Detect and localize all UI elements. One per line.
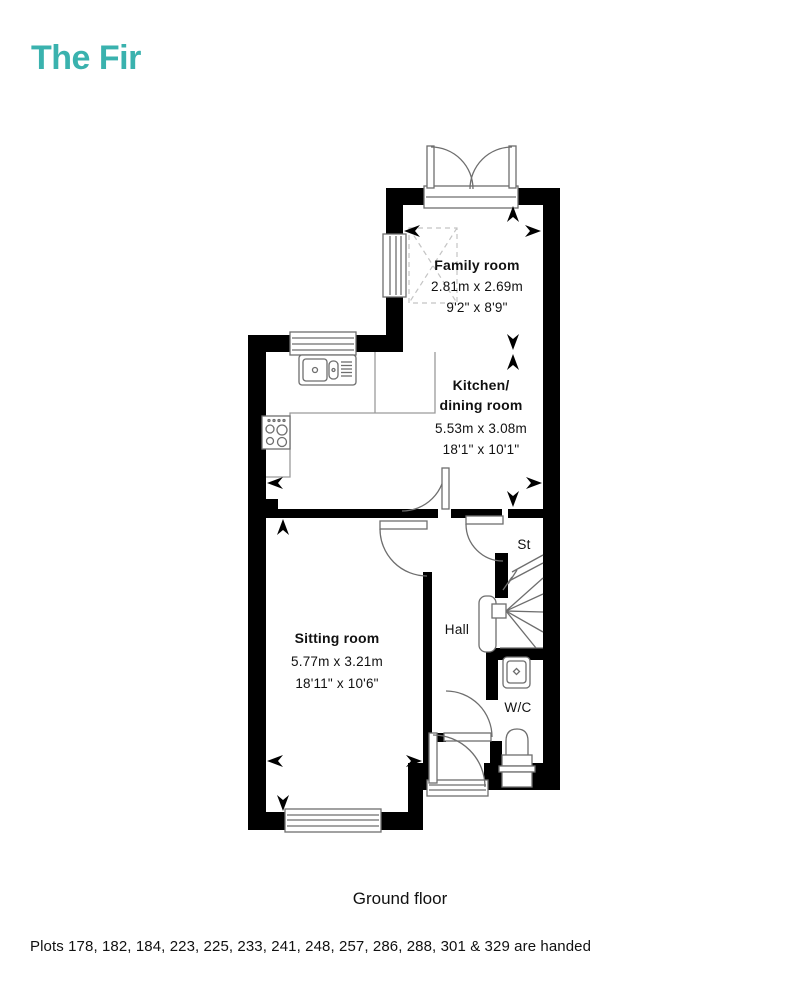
kitchen-label-line1: Kitchen/ — [453, 377, 510, 393]
basin-icon — [503, 657, 530, 688]
brochure-page: The Fir — [0, 0, 800, 983]
stairs-icon — [479, 555, 543, 652]
floor-caption: Ground floor — [0, 889, 800, 909]
toilet-icon — [499, 729, 535, 787]
sitting-room-label: Sitting room — [295, 630, 380, 646]
kitchen-metric: 5.53m x 3.08m — [435, 421, 527, 436]
sitting-room-window-icon — [285, 809, 381, 832]
family-room-metric: 2.81m x 2.69m — [431, 279, 523, 294]
sitting-room-metric: 5.77m x 3.21m — [291, 654, 383, 669]
kitchen-imperial: 18'1" x 10'1" — [443, 442, 520, 457]
plots-footnote: Plots 178, 182, 184, 223, 225, 233, 241,… — [30, 938, 770, 955]
sitting-room-door-icon — [380, 521, 427, 576]
french-doors-icon — [424, 146, 518, 208]
kitchen-door-icon — [402, 468, 449, 511]
sink-icon — [299, 355, 356, 385]
hob-icon — [262, 416, 290, 449]
floor-plan: Family room 2.81m x 2.69m 9'2" x 8'9" Ki… — [0, 0, 800, 983]
family-room-label: Family room — [434, 257, 519, 273]
kitchen-label-line2: dining room — [439, 397, 522, 413]
wc-door-icon — [444, 691, 492, 741]
storage-label: St — [517, 537, 530, 552]
hall-label: Hall — [445, 622, 469, 637]
kitchen-window-icon — [290, 332, 356, 355]
stair-newel-icon — [492, 604, 506, 618]
family-room-imperial: 9'2" x 8'9" — [446, 300, 507, 315]
front-door-icon — [427, 733, 488, 796]
family-room-window-icon — [383, 234, 406, 297]
sitting-room-imperial: 18'11" x 10'6" — [295, 676, 378, 691]
wc-label: W/C — [504, 700, 531, 715]
